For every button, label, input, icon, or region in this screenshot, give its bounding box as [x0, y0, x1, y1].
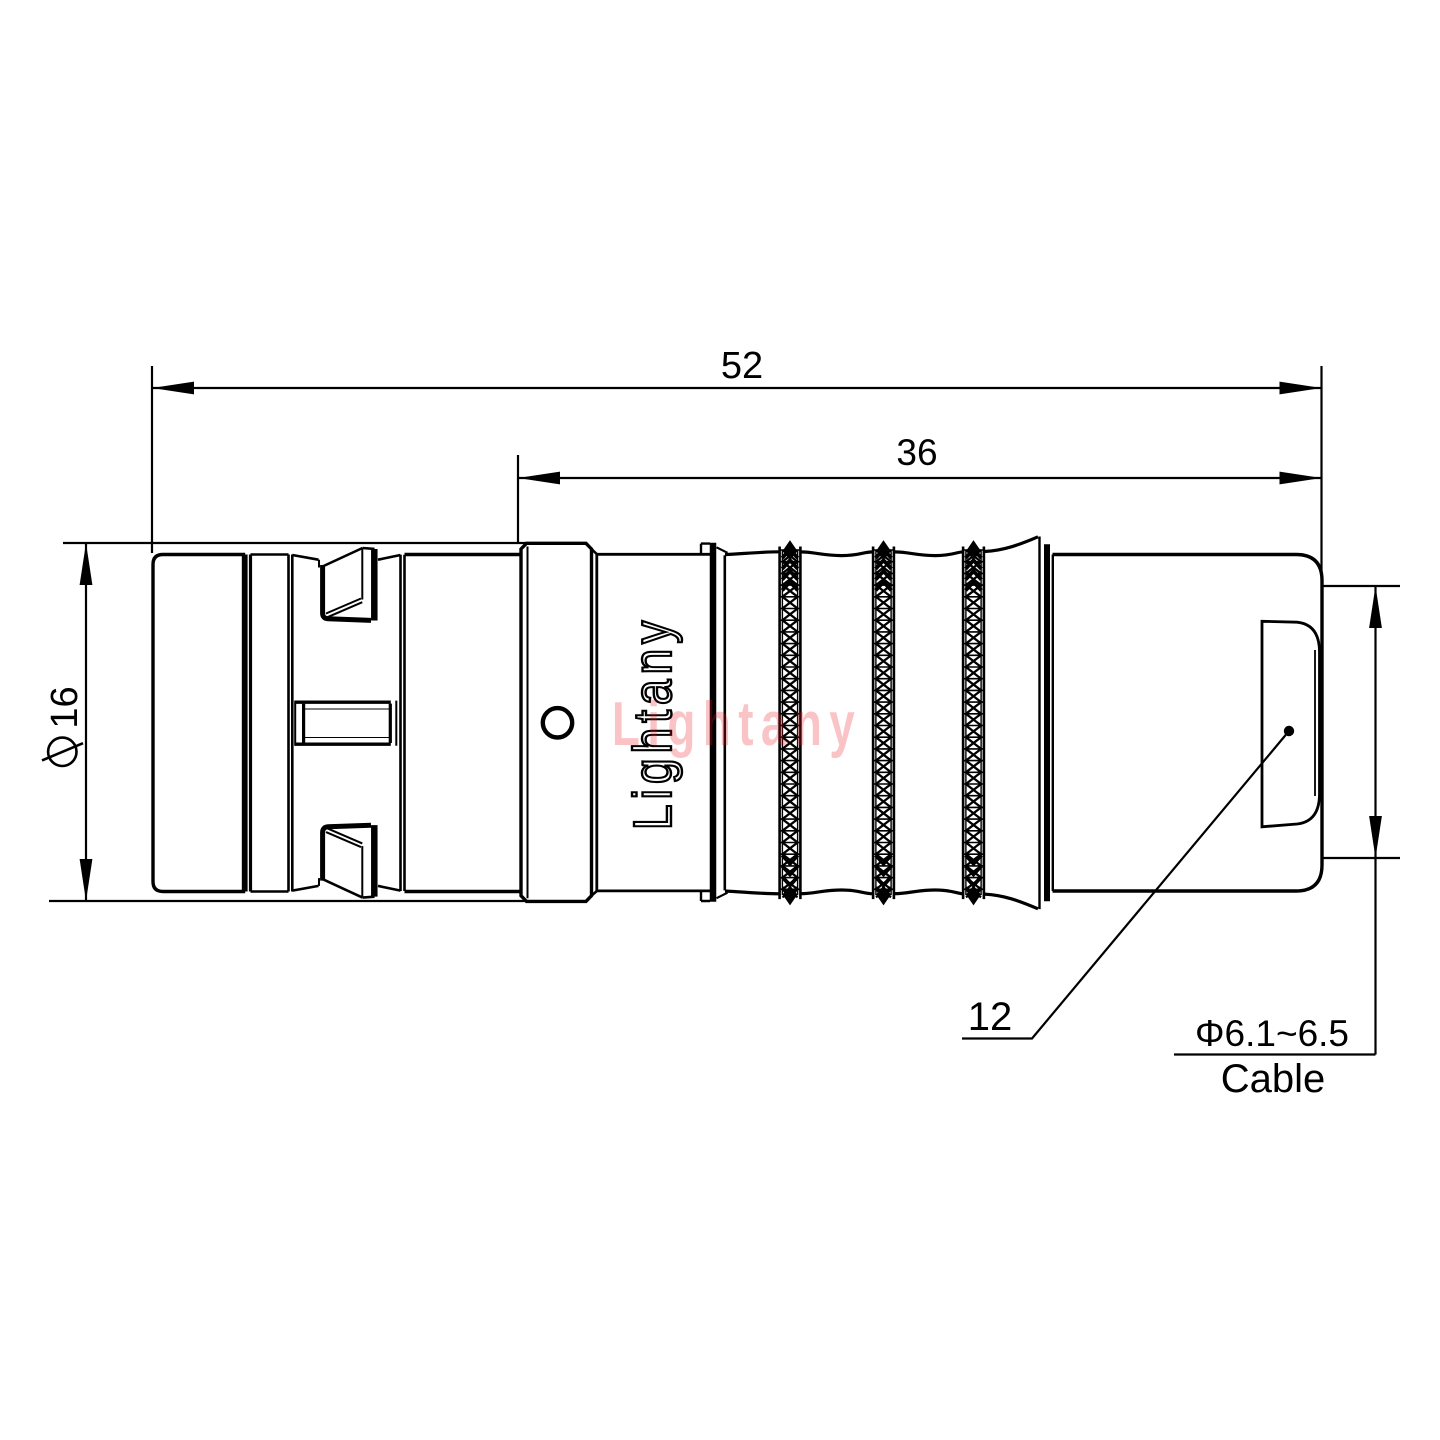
svg-text:Cable: Cable [1221, 1057, 1326, 1101]
svg-text:36: 36 [896, 432, 937, 473]
svg-text:52: 52 [721, 345, 763, 387]
svg-text:Φ6.1~6.5: Φ6.1~6.5 [1195, 1013, 1349, 1054]
svg-text:16: 16 [44, 686, 86, 728]
svg-text:12: 12 [968, 995, 1013, 1039]
svg-text:Lightany: Lightany [612, 689, 862, 758]
